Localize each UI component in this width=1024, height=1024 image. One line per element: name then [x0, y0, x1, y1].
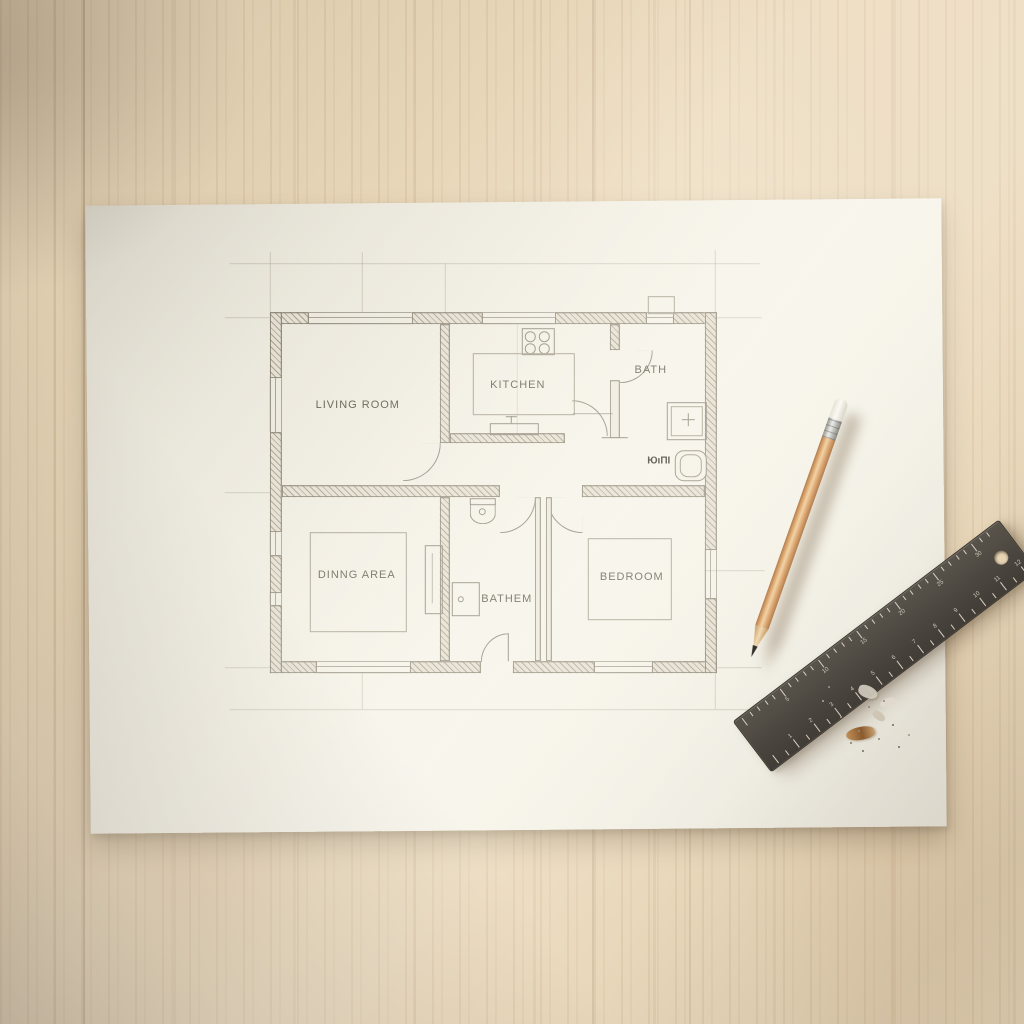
wall-segment — [270, 312, 282, 378]
construction-line — [362, 252, 363, 312]
wall-segment — [270, 555, 282, 593]
window-symbol — [270, 378, 282, 432]
floor-plan-drawing: LIVING ROOM KITCHEN BATH DINNG AREA BATH… — [270, 312, 717, 673]
ruler-tick — [787, 683, 791, 688]
wall-niche-outline — [648, 296, 675, 314]
door-arc — [403, 443, 441, 481]
ruler-tick — [1013, 577, 1017, 582]
construction-line — [230, 263, 760, 264]
ruler-tick — [847, 703, 851, 708]
wall-segment — [535, 497, 541, 661]
room-label-bathroom: BATHEM — [481, 593, 532, 605]
ruler-tick — [834, 708, 841, 717]
stove-burner-icon — [539, 331, 550, 342]
window-symbol — [309, 312, 412, 324]
ruler-tick — [971, 609, 975, 614]
washbasin-drain-icon — [479, 508, 486, 515]
kitchen-counter-outline — [573, 413, 613, 414]
ruler-tick — [933, 573, 939, 581]
ruler-tick — [818, 660, 824, 668]
ruler-tick — [959, 613, 966, 622]
room-label-wc-garbled: ЮıΠI — [647, 456, 670, 467]
ruler-tick — [780, 689, 786, 697]
shower-head-icon — [688, 413, 689, 426]
ruler-tick — [856, 631, 862, 639]
ruler-tick — [896, 661, 903, 670]
ruler-tick — [772, 695, 776, 700]
ruler-tick — [917, 584, 921, 589]
ruler-number: 25 — [936, 579, 945, 588]
construction-line — [715, 673, 716, 709]
ruler-tick — [992, 593, 996, 598]
ruler-number: 5 — [785, 696, 791, 703]
ruler-tick — [772, 755, 779, 764]
ruler-tick — [951, 624, 955, 629]
room-label-living-room: LIVING ROOM — [316, 399, 400, 411]
counter-outline — [425, 545, 443, 614]
shower-tray-icon — [671, 406, 703, 436]
ruler-tick — [814, 723, 821, 732]
ruler-tick — [864, 625, 868, 630]
ruler-tick — [979, 598, 986, 607]
ruler-tick — [902, 596, 906, 601]
ruler-tick — [833, 648, 837, 653]
ruler-tick — [887, 608, 891, 613]
faucet-icon — [506, 416, 517, 417]
construction-line — [230, 709, 760, 710]
counter-outline — [432, 553, 433, 603]
ruler-tick — [948, 561, 952, 566]
ruler-tick — [910, 590, 914, 595]
ruler-tick — [1000, 582, 1007, 591]
door-arc — [547, 497, 583, 533]
ruler-tick — [793, 739, 800, 748]
ruler-hole — [991, 548, 1011, 568]
ruler-tick — [986, 532, 990, 537]
stove-burner-icon — [525, 331, 536, 342]
ruler-tick — [956, 555, 960, 560]
ruler-tick — [930, 640, 934, 645]
kitchen-sink-icon — [490, 423, 539, 435]
ruler-tick — [925, 579, 929, 584]
construction-line — [717, 317, 762, 318]
ruler-tick — [879, 613, 883, 618]
construction-line — [225, 317, 270, 318]
desk-scene: LIVING ROOM KITCHEN BATH DINNG AREA BATH… — [0, 0, 1024, 1024]
blueprint-paper-sheet: LIVING ROOM KITCHEN BATH DINNG AREA BATH… — [85, 198, 946, 833]
construction-line — [270, 252, 271, 312]
faucet-icon — [511, 416, 512, 423]
wall-segment — [546, 497, 552, 661]
wall-segment — [610, 324, 620, 350]
ruler-number: 15 — [860, 637, 869, 646]
ruler-tick — [757, 706, 761, 711]
wall-segment — [705, 598, 717, 673]
window-symbol — [705, 550, 717, 598]
construction-line — [717, 667, 762, 668]
wall-segment — [555, 312, 647, 324]
ruler-tick — [963, 550, 967, 555]
room-label-kitchen: KITCHEN — [490, 379, 545, 391]
ruler-tick — [841, 642, 845, 647]
room-label-bath: BATH — [635, 364, 668, 376]
wood-plank-seam — [83, 0, 85, 1024]
ruler-tick — [765, 700, 769, 705]
shower-tray-icon — [452, 582, 480, 616]
room-label-dining-area: DINNG AREA — [318, 569, 396, 581]
ruler-tick — [872, 619, 876, 624]
window-symbol — [317, 661, 410, 673]
window-symbol — [270, 593, 282, 605]
construction-line — [225, 492, 270, 493]
ruler-tick — [917, 645, 924, 654]
ruler-tick — [876, 676, 883, 685]
ruler-tick — [749, 712, 753, 717]
wall-segment — [282, 485, 500, 497]
construction-line — [715, 250, 716, 312]
ruler-tick — [826, 654, 830, 659]
construction-line — [445, 263, 446, 312]
wall-segment — [270, 432, 282, 532]
ruler-tick — [742, 718, 748, 726]
door-arc — [500, 497, 536, 533]
ruler-number: 10 — [821, 666, 830, 675]
ruler-tick — [785, 750, 789, 755]
ruler-tick — [971, 544, 977, 552]
construction-line — [225, 667, 270, 668]
window-symbol — [270, 532, 282, 555]
ruler-tick — [895, 602, 901, 610]
wall-segment — [513, 661, 595, 673]
ruler-tick — [795, 677, 799, 682]
shower-drain-icon — [458, 596, 464, 602]
wall-segment — [582, 485, 705, 497]
toilet-icon — [680, 454, 702, 477]
graphite-specks — [828, 686, 830, 688]
ruler-tick — [849, 637, 853, 642]
door-arc — [572, 400, 608, 436]
ruler-tick — [803, 671, 807, 676]
ruler-tick — [979, 538, 983, 543]
window-symbol — [483, 312, 555, 324]
window-symbol — [595, 661, 652, 673]
ruler-tick — [940, 567, 944, 572]
wall-segment — [412, 312, 483, 324]
wall-segment — [410, 661, 481, 673]
wall-segment — [440, 324, 450, 443]
construction-line — [362, 673, 363, 709]
ruler-tick — [806, 734, 810, 739]
dining-table-outline — [310, 532, 407, 632]
wall-segment — [270, 605, 282, 673]
ruler-tick — [909, 656, 913, 661]
ruler-tick — [889, 672, 893, 677]
ruler-number: 30 — [974, 550, 983, 559]
door-arc — [481, 633, 509, 662]
room-label-bedroom: BEDROOM — [600, 571, 664, 583]
ruler-number: 20 — [898, 608, 907, 617]
wall-tick — [602, 437, 628, 438]
ruler-tick — [810, 666, 814, 671]
ruler-tick — [938, 629, 945, 638]
ruler-tick — [826, 719, 830, 724]
pencil-tip — [748, 645, 758, 658]
wall-segment — [610, 380, 620, 438]
